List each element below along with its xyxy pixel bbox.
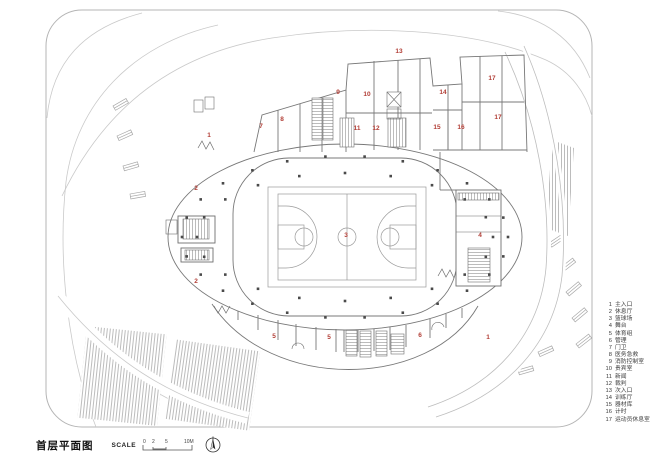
legend-item: 5体育组: [603, 331, 650, 338]
legend-item-number: 16: [603, 409, 612, 416]
room-number-label: 9: [336, 90, 340, 97]
legend-item: 13次入口: [603, 388, 650, 395]
legend-item-label: 舞台: [615, 323, 627, 330]
legend-item-number: 2: [603, 309, 612, 316]
svg-text:2: 2: [152, 439, 155, 445]
svg-text:0: 0: [143, 439, 146, 445]
north-arrow-icon: [204, 436, 222, 454]
legend-item-number: 8: [603, 352, 612, 359]
room-number-label: 17: [488, 76, 495, 83]
room-number-label: 5: [272, 334, 276, 341]
room-number-label: 10: [363, 92, 370, 99]
room-number-label: 3: [344, 233, 348, 240]
legend-item-number: 3: [603, 316, 612, 323]
legend-item-label: 体育组: [615, 331, 632, 338]
room-number-label: 13: [395, 49, 402, 56]
legend-item-label: 裁判: [615, 381, 627, 388]
room-number-label: 15: [433, 125, 440, 132]
legend-item: 6管理: [603, 338, 650, 345]
room-number-label: 4: [478, 233, 482, 240]
legend-item-label: 计时: [615, 409, 627, 416]
legend-item: 4舞台: [603, 323, 650, 330]
elevator: [387, 92, 401, 119]
architectural-drawing-page: 112234556789101112131415161717 1主入口2休息厅3…: [0, 0, 650, 458]
room-number-label: 17: [494, 115, 501, 122]
room-number-label: 7: [259, 124, 263, 131]
legend-item-number: 12: [603, 381, 612, 388]
legend-item-number: 6: [603, 338, 612, 345]
legend-item-label: 管理: [615, 338, 627, 345]
legend-item-label: 贵宾室: [615, 366, 632, 373]
legend-item-number: 14: [603, 395, 612, 402]
room-number-label: 14: [439, 90, 446, 97]
room-number-label: 1: [207, 133, 211, 140]
legend-item: 16计时: [603, 409, 650, 416]
legend: 1主入口2休息厅3篮球场4舞台5体育组6管理7门卫8医务急救9消防控制室10贵宾…: [603, 302, 650, 424]
legend-item-number: 17: [603, 417, 612, 424]
legend-item-number: 15: [603, 402, 612, 409]
legend-item-label: 次入口: [615, 388, 632, 395]
legend-item-number: 13: [603, 388, 612, 395]
legend-item-label: 新闻: [615, 374, 627, 381]
legend-item: 12裁判: [603, 381, 650, 388]
legend-item: 17运动员休息室: [603, 417, 650, 424]
legend-item: 10贵宾室: [603, 366, 650, 373]
title-bar: 首层平面图 SCALE 0 2 5 10M: [36, 436, 222, 454]
legend-item: 11新闻: [603, 374, 650, 381]
page-title: 首层平面图: [36, 438, 94, 453]
legend-item-number: 9: [603, 359, 612, 366]
room-number-label: 6: [418, 333, 422, 340]
room-number-label: 1: [486, 335, 490, 342]
room-number-label: 5: [327, 335, 331, 342]
svg-text:5: 5: [165, 439, 168, 445]
legend-item-number: 7: [603, 345, 612, 352]
scale-label: SCALE: [112, 442, 137, 449]
room-number-label: 16: [457, 125, 464, 132]
room-number-label: 2: [194, 279, 198, 286]
room-number-label: 11: [354, 126, 361, 133]
room-number-label: 2: [194, 186, 198, 193]
room-number-label: 8: [280, 117, 284, 124]
legend-item-number: 1: [603, 302, 612, 309]
legend-item-number: 5: [603, 331, 612, 338]
floor-plan-svg: [0, 0, 650, 458]
legend-item-number: 10: [603, 366, 612, 373]
legend-item-number: 4: [603, 323, 612, 330]
legend-item-label: 运动员休息室: [615, 417, 650, 424]
scale-bar: 0 2 5 10M: [142, 437, 196, 454]
svg-text:10M: 10M: [184, 439, 194, 445]
legend-item-number: 11: [603, 374, 612, 381]
room-number-label: 12: [372, 126, 379, 133]
